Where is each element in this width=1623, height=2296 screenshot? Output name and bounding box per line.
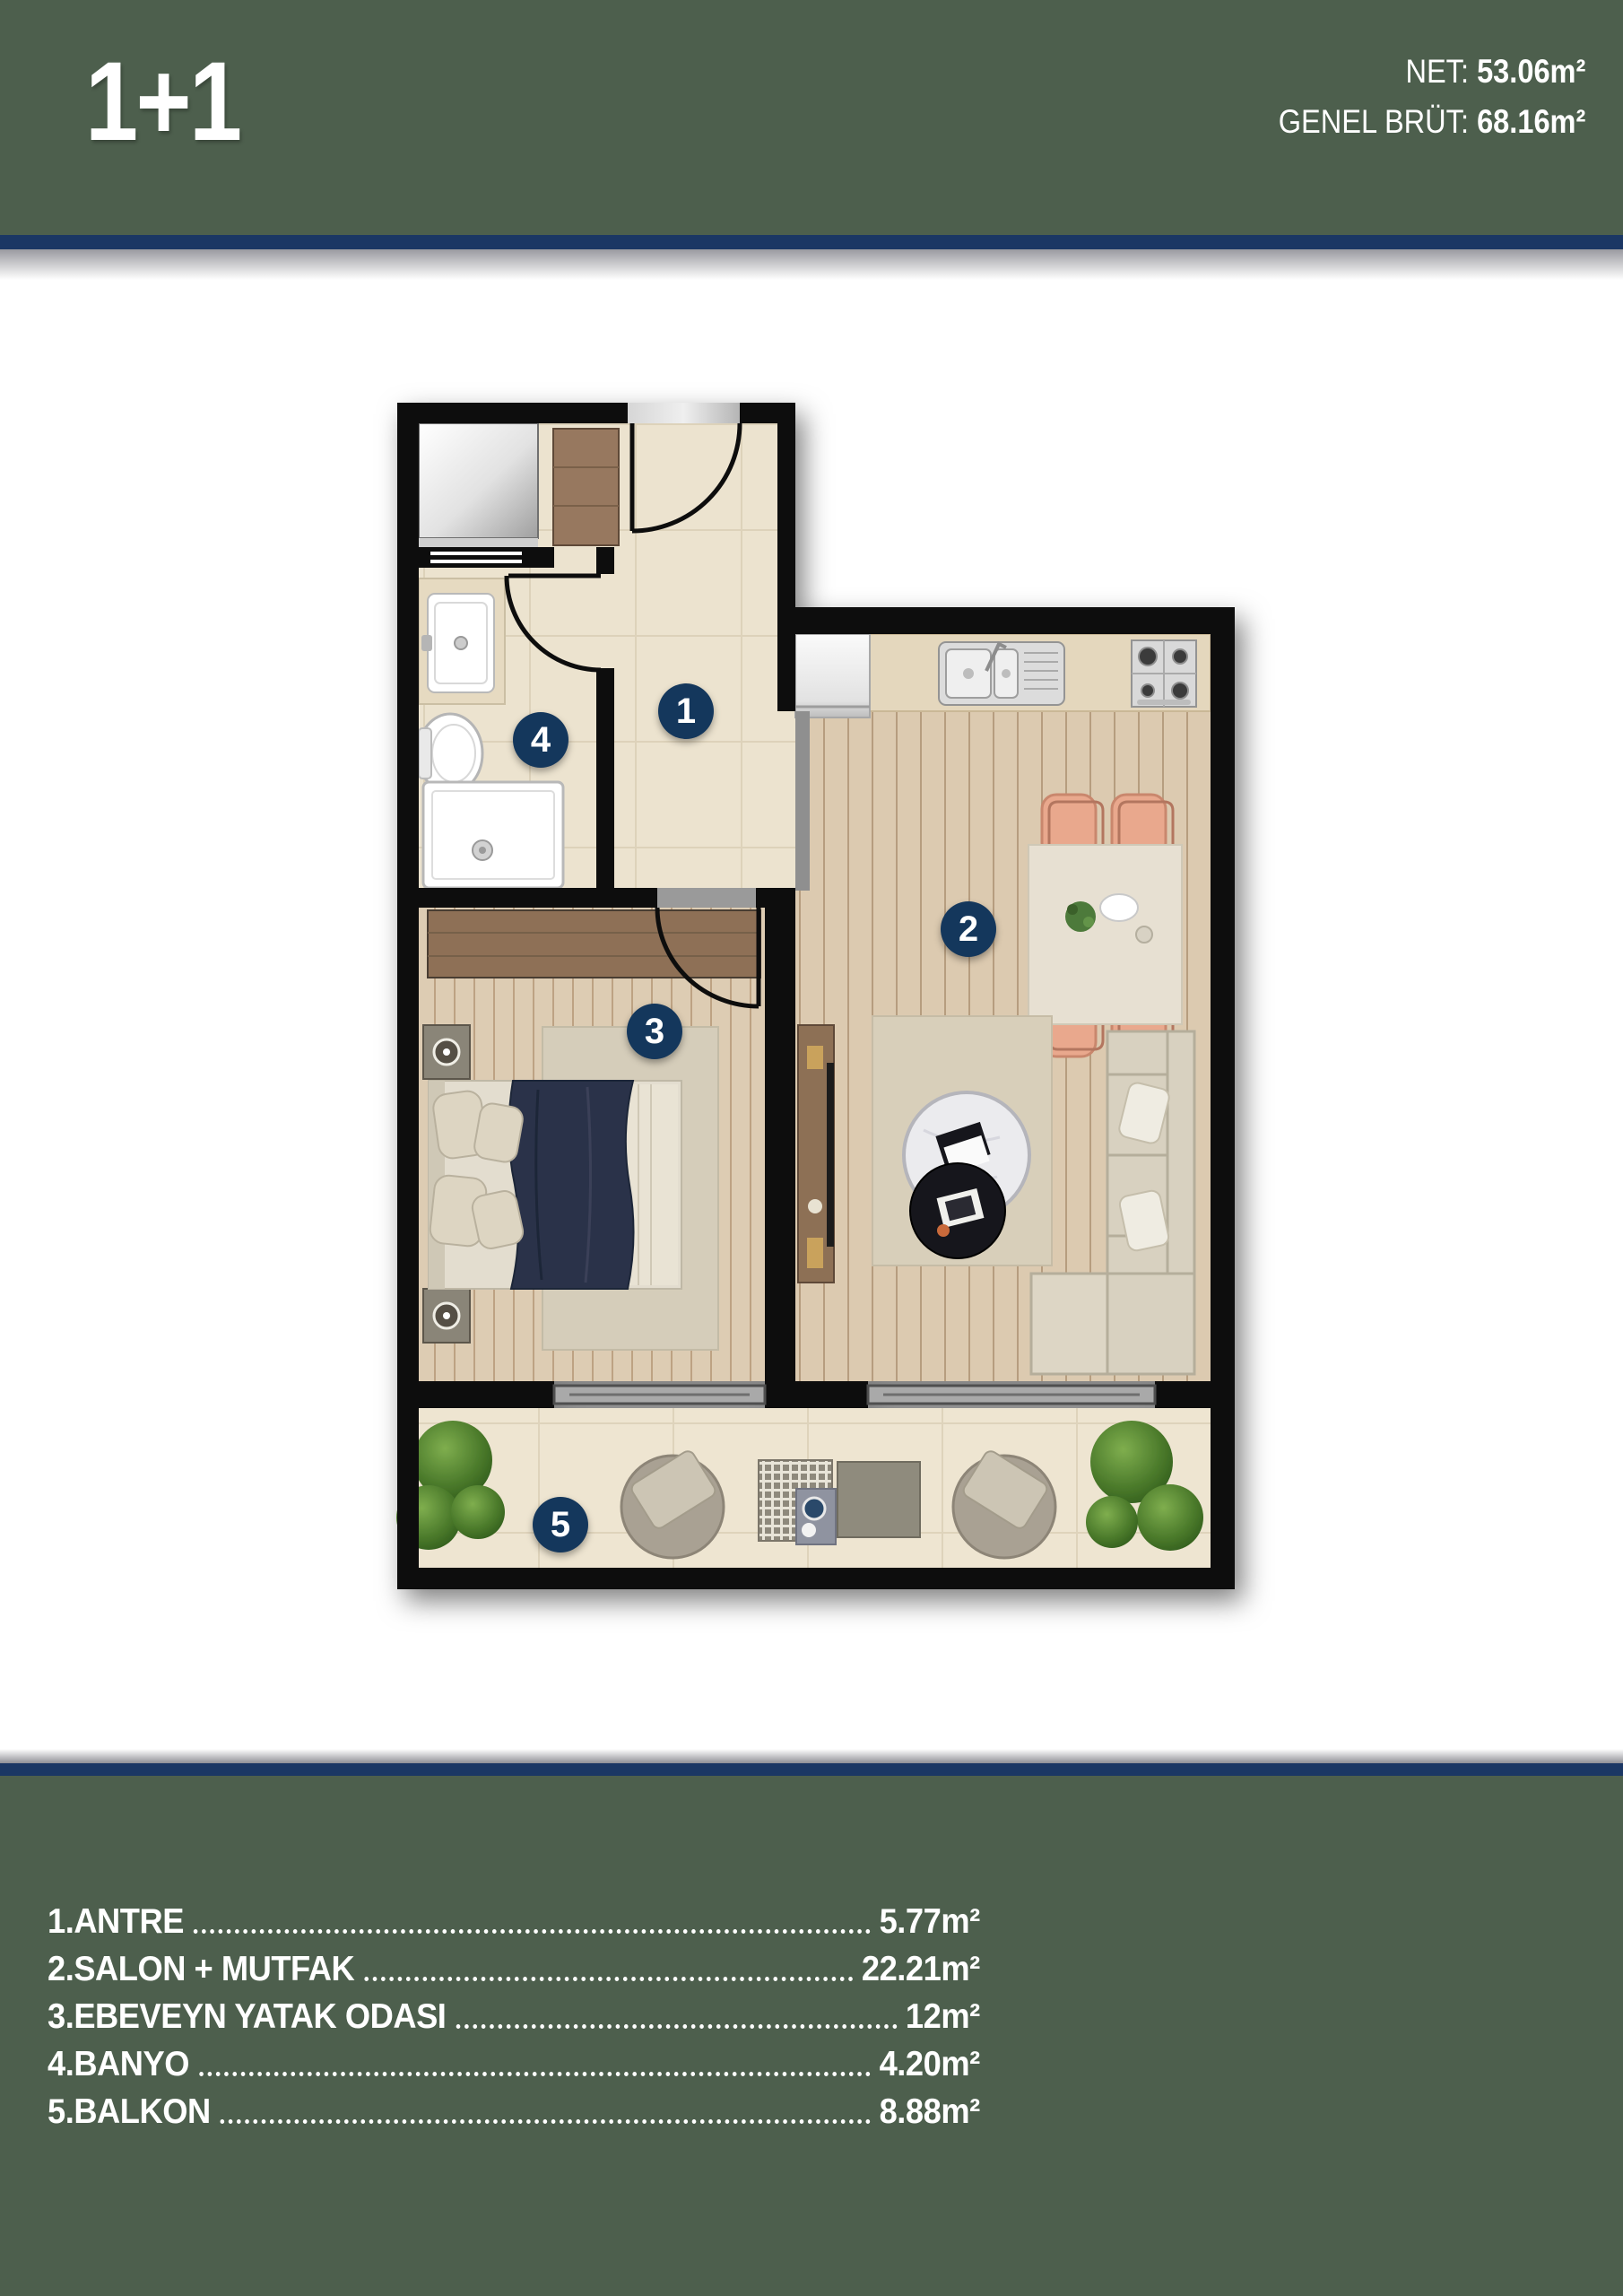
kitchen-sink xyxy=(939,642,1064,705)
stove xyxy=(1132,640,1196,707)
table-plate xyxy=(1100,894,1138,921)
hall-living-threshold xyxy=(795,711,810,891)
legend-label: 2.SALON + MUTFAK xyxy=(48,1950,354,1989)
legend-label: 4.BANYO xyxy=(48,2045,189,2084)
fridge xyxy=(795,634,870,717)
legend-label: 3.EBEVEYN YATAK ODASI xyxy=(48,1997,446,2037)
net-area-row: NET: 53.06m² xyxy=(1278,47,1585,97)
legend-dots xyxy=(194,1929,871,1934)
bedroom-wardrobe xyxy=(428,910,760,978)
room-badge-yatak-odasi: 3 xyxy=(627,1004,682,1059)
footer-divider-bar xyxy=(0,1763,1623,1776)
page-title: 1+1 xyxy=(85,38,240,166)
header-shadow xyxy=(0,249,1623,280)
bathroom-sink xyxy=(419,578,505,704)
nightstand-bottom xyxy=(423,1289,470,1343)
brut-area-row: GENEL BRÜT: 68.16m² xyxy=(1278,97,1585,147)
bed xyxy=(429,1081,681,1289)
coffee-table-black xyxy=(910,1163,1005,1258)
legend-dots xyxy=(199,2072,871,2076)
room-badge-antre: 1 xyxy=(658,683,714,739)
legend-dots xyxy=(456,2024,898,2029)
legend-row-banyo: 4.BANYO 4.20m² xyxy=(48,2037,980,2084)
footer-shadow xyxy=(0,1749,1623,1763)
brut-label: GENEL BRÜT: xyxy=(1278,103,1468,140)
legend-row-yatak-odasi: 3.EBEVEYN YATAK ODASI 12m² xyxy=(48,1989,980,2037)
entry-threshold xyxy=(628,403,740,423)
bed-duvet xyxy=(508,1081,633,1289)
shaft xyxy=(419,423,538,538)
dining-table xyxy=(1028,845,1182,1024)
legend-value: 22.21m² xyxy=(862,1950,980,1989)
entry-wardrobe xyxy=(553,429,619,545)
area-metrics: NET: 53.06m² GENEL BRÜT: 68.16m² xyxy=(1278,47,1585,147)
legend-value: 5.77m² xyxy=(880,1902,980,1942)
room-legend: 1.ANTRE 5.77m² 2.SALON + MUTFAK 22.21m² … xyxy=(48,1894,980,2132)
legend-value: 4.20m² xyxy=(880,2045,980,2084)
legend-row-antre: 1.ANTRE 5.77m² xyxy=(48,1894,980,1942)
brochure-page: 1+1 NET: 53.06m² GENEL BRÜT: 68.16m² 1 2… xyxy=(0,0,1623,2296)
brut-value: 68.16m² xyxy=(1477,103,1585,140)
legend-dots xyxy=(364,1977,853,1981)
legend-label: 1.ANTRE xyxy=(48,1902,184,1942)
balcony-table-set xyxy=(759,1460,920,1544)
room-badge-banyo: 4 xyxy=(513,712,568,768)
net-value: 53.06m² xyxy=(1477,53,1585,90)
bedroom-threshold xyxy=(657,888,756,908)
room-badge-balkon: 5 xyxy=(533,1497,588,1552)
legend-row-salon-mutfak: 2.SALON + MUTFAK 22.21m² xyxy=(48,1942,980,1989)
room-badge-salon-mutfak: 2 xyxy=(941,901,996,957)
legend-value: 12m² xyxy=(906,1997,980,2037)
nightstand-top xyxy=(423,1025,470,1079)
legend-label: 5.BALKON xyxy=(48,2092,211,2132)
shower xyxy=(423,782,563,888)
legend-dots xyxy=(221,2119,871,2124)
header-divider-bar xyxy=(0,235,1623,249)
legend-row-balkon: 5.BALKON 8.88m² xyxy=(48,2084,980,2132)
net-label: NET: xyxy=(1405,53,1469,90)
tv-console xyxy=(798,1025,834,1283)
apartment-plan xyxy=(396,403,1235,1589)
legend-value: 8.88m² xyxy=(880,2092,980,2132)
